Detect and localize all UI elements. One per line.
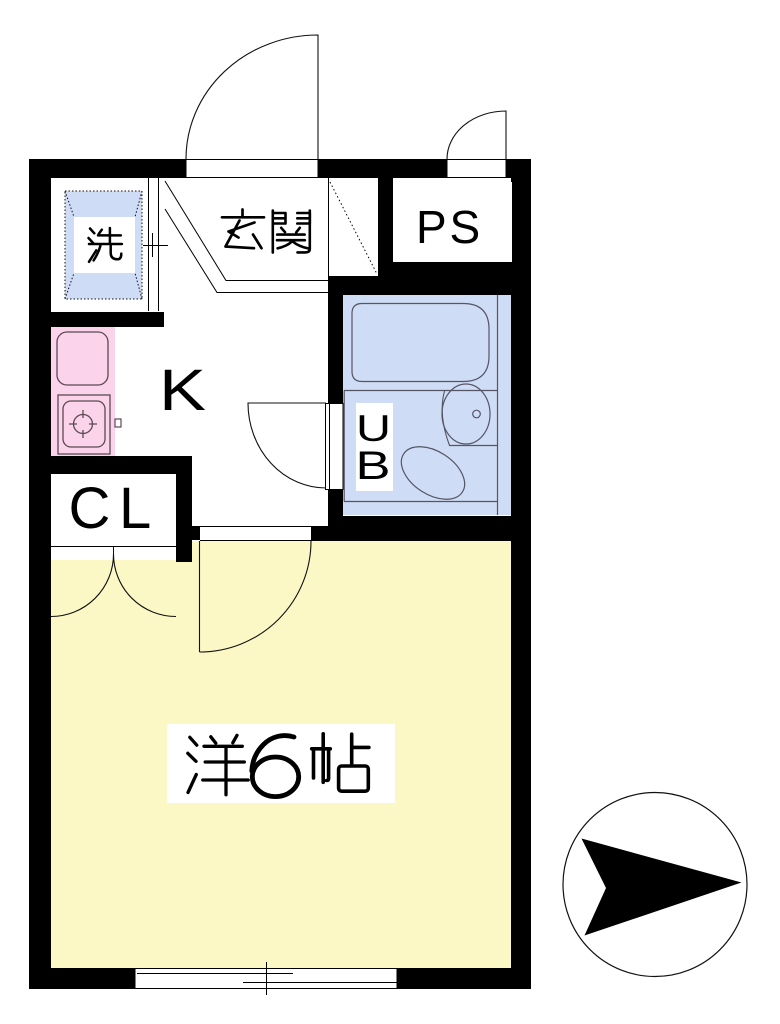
svg-text:L: L [119, 476, 151, 541]
svg-text:U: U [356, 408, 391, 449]
svg-text:P: P [416, 201, 447, 253]
svg-text:C: C [69, 476, 111, 541]
svg-text:S: S [450, 201, 481, 253]
svg-text:B: B [356, 444, 391, 488]
svg-text:K: K [159, 358, 206, 423]
